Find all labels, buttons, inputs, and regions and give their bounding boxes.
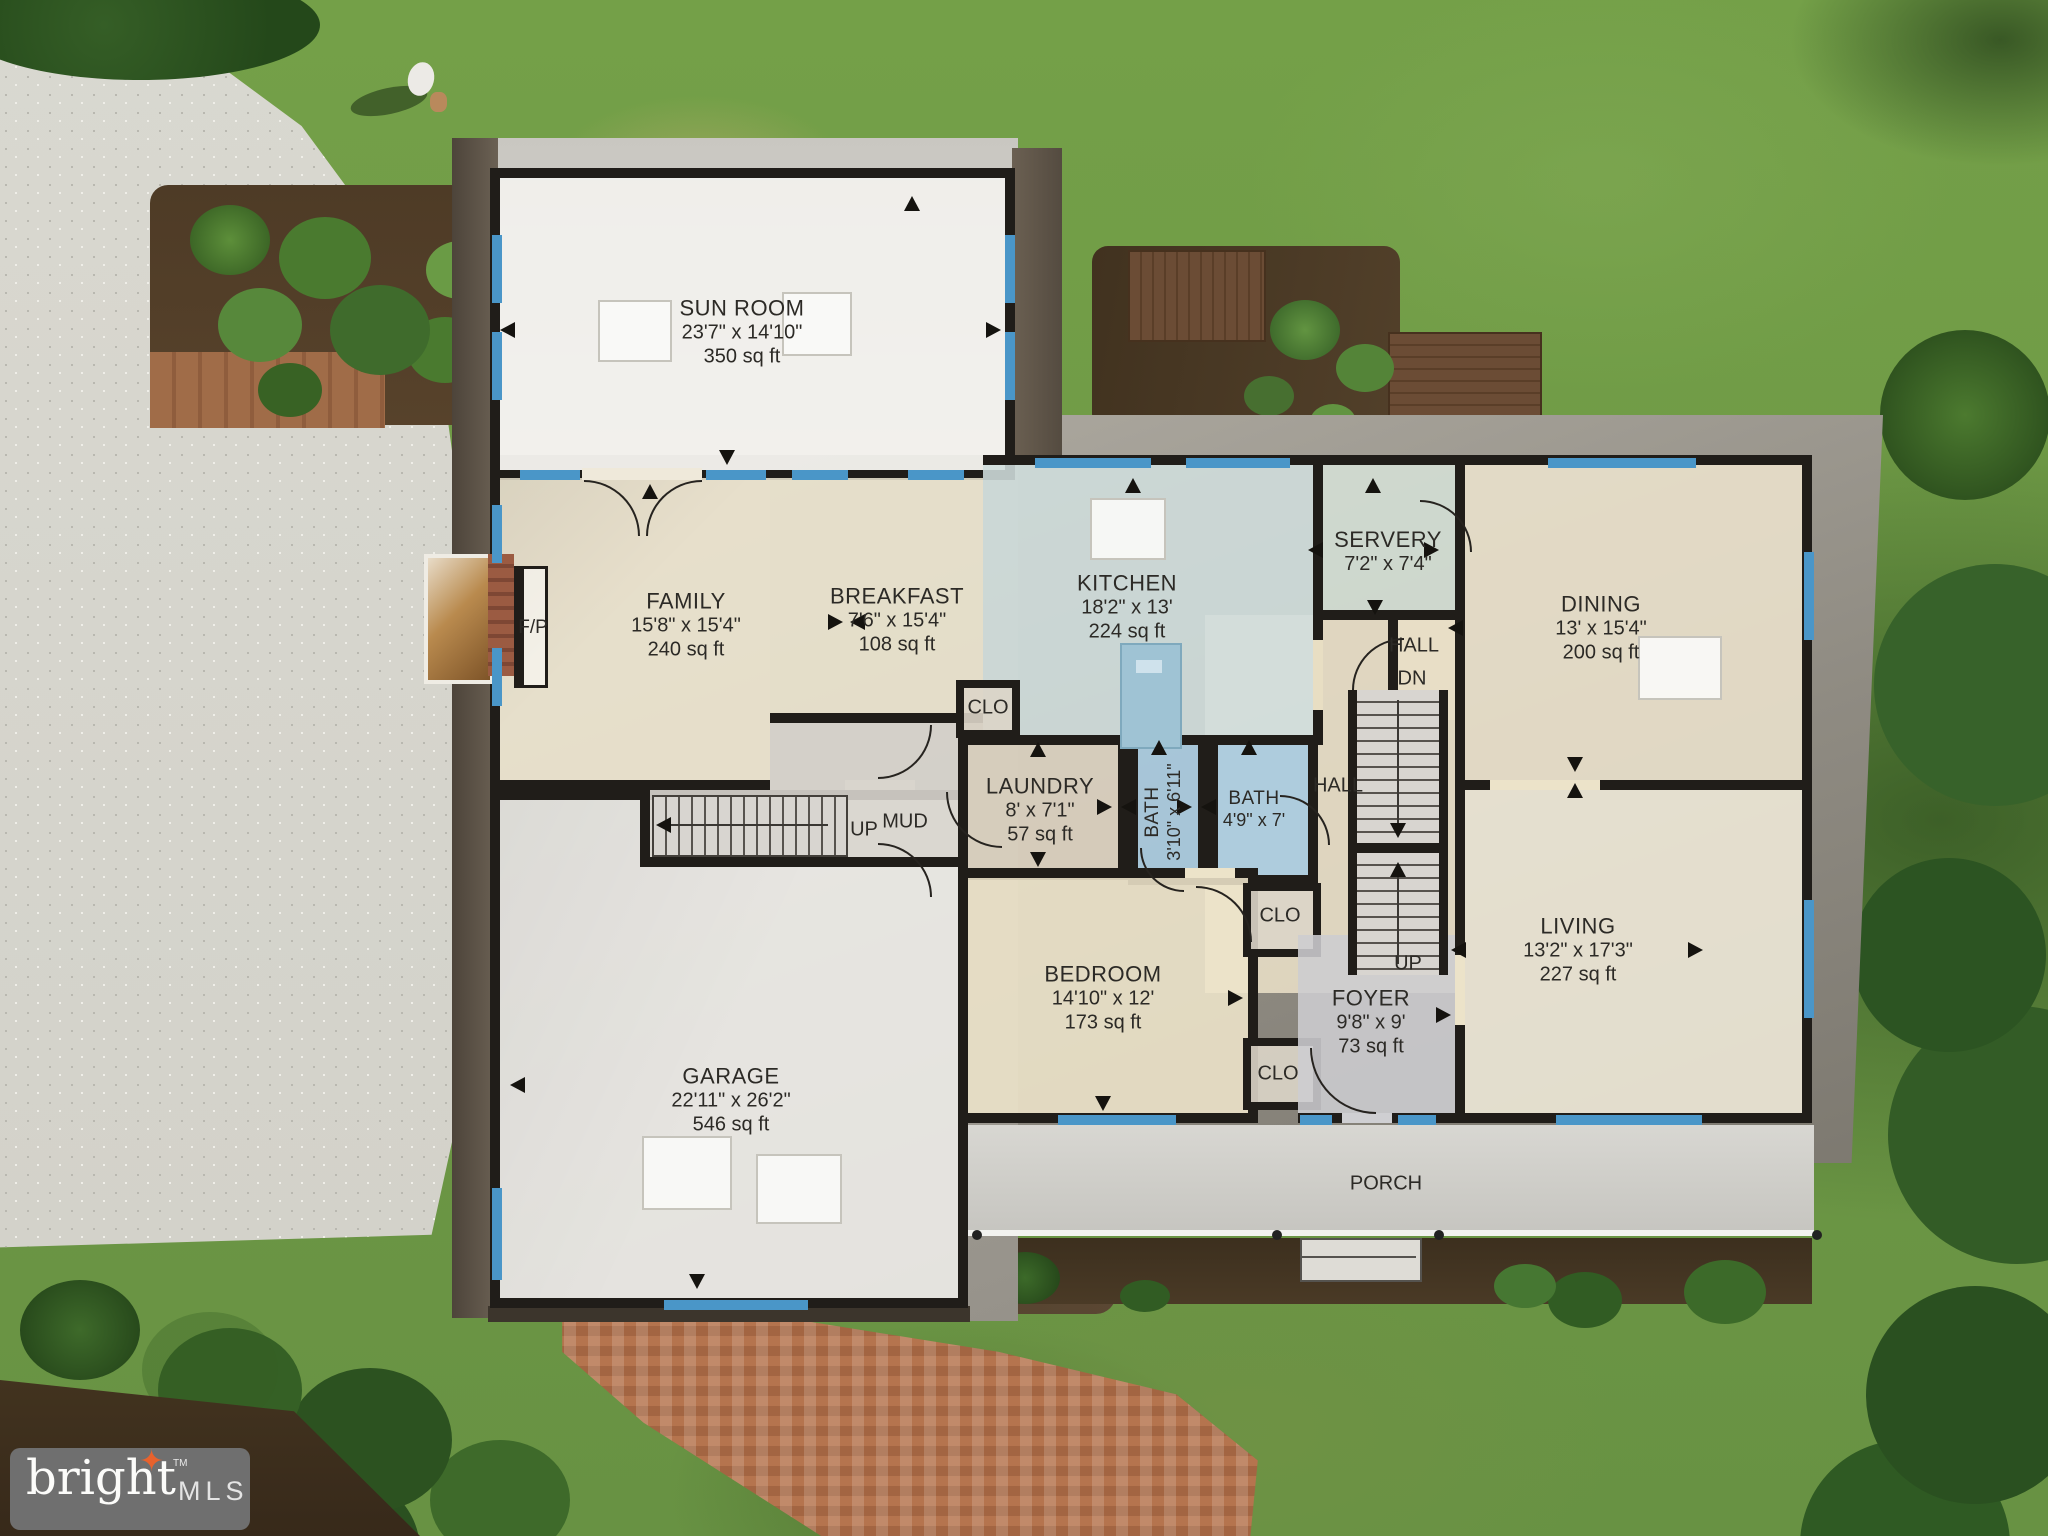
porch-post-left	[1272, 1230, 1282, 1240]
room-label-kitchen: KITCHEN 18'2" x 13' 224 sq ft	[1077, 570, 1177, 643]
label-clo-mid: CLO	[1259, 905, 1300, 928]
room-area: 173 sq ft	[1044, 1011, 1161, 1035]
room-label-bedroom: BEDROOM 14'10" x 12' 173 sq ft	[1044, 961, 1161, 1034]
door-gap-dining-living	[1490, 780, 1600, 790]
mls-text: MLS	[178, 1476, 249, 1507]
label-clo-breakfast: CLO	[967, 697, 1008, 720]
window-strip	[1398, 1115, 1436, 1125]
roof-east-of-sunroom	[1012, 148, 1062, 463]
porch-railing	[962, 1230, 1814, 1236]
dim-arrow	[986, 322, 1001, 338]
dim-arrow	[1097, 799, 1112, 815]
label-porch: PORCH	[1350, 1173, 1422, 1196]
room-name: BEDROOM	[1044, 961, 1161, 987]
room-label-servery: SERVERY 7'2" x 7'4"	[1334, 527, 1442, 577]
room-dims: 9'8" x 9'	[1332, 1011, 1410, 1035]
kitchen-island-sink	[1136, 660, 1162, 673]
dim-arrow	[1308, 542, 1323, 558]
chimney-skylight	[424, 554, 494, 684]
room-area: 57 sq ft	[986, 823, 1094, 847]
room-label-dining: DINING 13' x 15'4" 200 sq ft	[1555, 591, 1646, 664]
dim-arrow	[1448, 620, 1463, 636]
room-dims: 3'10" x 6'11"	[1165, 763, 1186, 860]
room-label-breakfast: BREAKFAST 7'6" x 15'4" 108 sq ft	[830, 583, 964, 656]
label-clo-lower: CLO	[1257, 1063, 1298, 1086]
window-strip	[1186, 458, 1290, 468]
room-area: 350 sq ft	[680, 345, 805, 369]
room-name: KITCHEN	[1077, 570, 1177, 596]
room-label-foyer: FOYER 9'8" x 9' 73 sq ft	[1332, 985, 1410, 1058]
garden-shrubs	[190, 205, 270, 275]
label-hall-upper: HALL	[1389, 635, 1439, 658]
aerial-floor-plan-photo: SUN ROOM 23'7" x 14'10" 350 sq ft FAMILY…	[0, 0, 2048, 1536]
room-area: 224 sq ft	[1077, 620, 1177, 644]
window-strip	[1058, 1115, 1176, 1125]
window-strip	[492, 332, 502, 400]
dim-arrow	[1125, 478, 1141, 493]
stairs-up-mud-arrow	[656, 817, 671, 833]
wood-deck-upper	[1128, 250, 1266, 342]
room-dims: 13' x 15'4"	[1555, 617, 1646, 641]
trademark-mark: TM	[173, 1458, 187, 1469]
dim-arrow	[1241, 740, 1257, 755]
room-label-bath-small: BATH 3'10" x 6'11"	[1142, 763, 1186, 860]
room-dims: 4'9" x 7'	[1223, 811, 1285, 832]
room-name: LAUNDRY	[986, 773, 1094, 799]
porch-step-line	[1302, 1256, 1416, 1258]
window-strip	[1035, 458, 1151, 468]
stairs-dn-arrow-line	[1397, 700, 1399, 825]
window-strip	[1548, 458, 1696, 468]
room-area: 240 sq ft	[631, 638, 741, 662]
door-gap-sunroom	[582, 468, 702, 480]
window-strip	[908, 470, 964, 480]
room-label-sun-room: SUN ROOM 23'7" x 14'10" 350 sq ft	[680, 295, 805, 368]
stairs-up-arrow	[1390, 862, 1406, 877]
room-area: 73 sq ft	[1332, 1035, 1410, 1059]
window-strip	[492, 648, 502, 706]
room-dims: 7'6" x 15'4"	[830, 609, 964, 633]
deck-plants	[1270, 300, 1340, 360]
dim-arrow	[1567, 757, 1583, 772]
dim-arrow	[904, 196, 920, 211]
dim-arrow	[1095, 1096, 1111, 1111]
stairs-up-mud-arrow-line	[668, 824, 828, 826]
window-strip	[1005, 235, 1015, 303]
dim-arrow	[1151, 740, 1167, 755]
skylight	[1090, 498, 1166, 560]
room-name: DINING	[1555, 591, 1646, 617]
label-fireplace: F/P	[518, 617, 548, 639]
window-strip	[492, 505, 502, 563]
room-dims: 8' x 7'1"	[986, 799, 1094, 823]
dim-arrow	[1436, 1007, 1451, 1023]
door-gap-kitchen-hall	[1313, 640, 1323, 710]
window-strip	[1556, 1115, 1702, 1125]
room-dims: 7'2" x 7'4"	[1334, 553, 1442, 577]
door-gap-family-mud	[845, 780, 915, 790]
room-name: GARAGE	[671, 1063, 790, 1089]
person-legs	[430, 92, 447, 112]
dim-arrow	[1228, 990, 1243, 1006]
window-strip	[706, 470, 766, 480]
stairs-dn-arrow	[1390, 823, 1406, 838]
room-name: BATH	[1142, 763, 1164, 860]
room-area: 546 sq ft	[671, 1113, 790, 1137]
room-area: 108 sq ft	[830, 633, 964, 657]
skylight	[756, 1154, 842, 1224]
room-dims: 15'8" x 15'4"	[631, 614, 741, 638]
window-strip	[1005, 332, 1015, 400]
dim-arrow	[1365, 478, 1381, 493]
room-name: FAMILY	[631, 588, 741, 614]
dim-arrow	[1567, 783, 1583, 798]
stairs-up-arrow-line	[1397, 872, 1399, 964]
label-dn: DN	[1398, 668, 1427, 691]
room-area: 200 sq ft	[1555, 641, 1646, 665]
door-gap-foyer-living	[1455, 955, 1465, 1025]
dim-arrow	[1030, 742, 1046, 757]
wall-stairs-mid	[1348, 843, 1448, 853]
bushes-bottom-left	[20, 1280, 140, 1380]
window-strip	[1804, 552, 1814, 640]
dim-arrow	[689, 1274, 705, 1289]
window-strip	[492, 1188, 502, 1280]
room-dims: 13'2" x 17'3"	[1523, 939, 1633, 963]
room-name: SUN ROOM	[680, 295, 805, 321]
skylight	[642, 1136, 732, 1210]
dim-arrow	[1367, 600, 1383, 615]
dim-arrow	[510, 1077, 525, 1093]
room-dims: 18'2" x 13'	[1077, 596, 1177, 620]
label-mud: MUD	[882, 811, 928, 834]
star-icon: ✦	[139, 1444, 164, 1479]
window-strip	[1300, 1115, 1332, 1125]
trees-right	[1880, 330, 2048, 500]
room-name: FOYER	[1332, 985, 1410, 1011]
dim-arrow	[1030, 852, 1046, 867]
dim-arrow	[719, 450, 735, 465]
dim-arrow	[1201, 799, 1216, 815]
room-name: BATH	[1223, 788, 1285, 810]
room-area: 227 sq ft	[1523, 963, 1633, 987]
wall-mud-west	[640, 790, 650, 867]
window-strip	[492, 235, 502, 303]
window-strip	[664, 1300, 808, 1310]
label-up-mud: UP	[850, 819, 878, 842]
room-living	[1455, 790, 1812, 1123]
skylight	[1638, 636, 1722, 700]
room-dims: 14'10" x 12'	[1044, 987, 1161, 1011]
window-strip	[1804, 900, 1814, 1018]
room-label-garage: GARAGE 22'11" x 26'2" 546 sq ft	[671, 1063, 790, 1136]
dim-arrow	[1688, 942, 1703, 958]
room-label-living: LIVING 13'2" x 17'3" 227 sq ft	[1523, 913, 1633, 986]
stairs-up-mud	[652, 795, 848, 857]
dim-arrow	[500, 322, 515, 338]
window-strip	[792, 470, 848, 480]
skylight	[598, 300, 672, 362]
window-strip	[520, 470, 580, 480]
label-hall-mid: HALL	[1313, 775, 1363, 798]
brightmls-logo: bright ✦ TM MLS	[10, 1448, 250, 1530]
dim-arrow	[1121, 799, 1136, 815]
label-up-foyer: UP	[1394, 953, 1422, 976]
porch-steps	[1300, 1238, 1422, 1282]
patio-bricks	[150, 352, 385, 428]
door-gap-bedroom	[1185, 868, 1235, 878]
room-dims: 23'7" x 14'10"	[680, 321, 805, 345]
room-name: LIVING	[1523, 913, 1633, 939]
room-label-bath-hall: BATH 4'9" x 7'	[1223, 788, 1285, 832]
room-name: SERVERY	[1334, 527, 1442, 553]
room-name: BREAKFAST	[830, 583, 964, 609]
room-label-family: FAMILY 15'8" x 15'4" 240 sq ft	[631, 588, 741, 661]
dim-arrow	[642, 484, 658, 499]
room-label-laundry: LAUNDRY 8' x 7'1" 57 sq ft	[986, 773, 1094, 846]
dim-arrow	[1451, 942, 1466, 958]
room-dims: 22'11" x 26'2"	[671, 1089, 790, 1113]
kitchen-island	[1120, 643, 1182, 749]
door-gap-foyer-front	[1342, 1113, 1392, 1123]
